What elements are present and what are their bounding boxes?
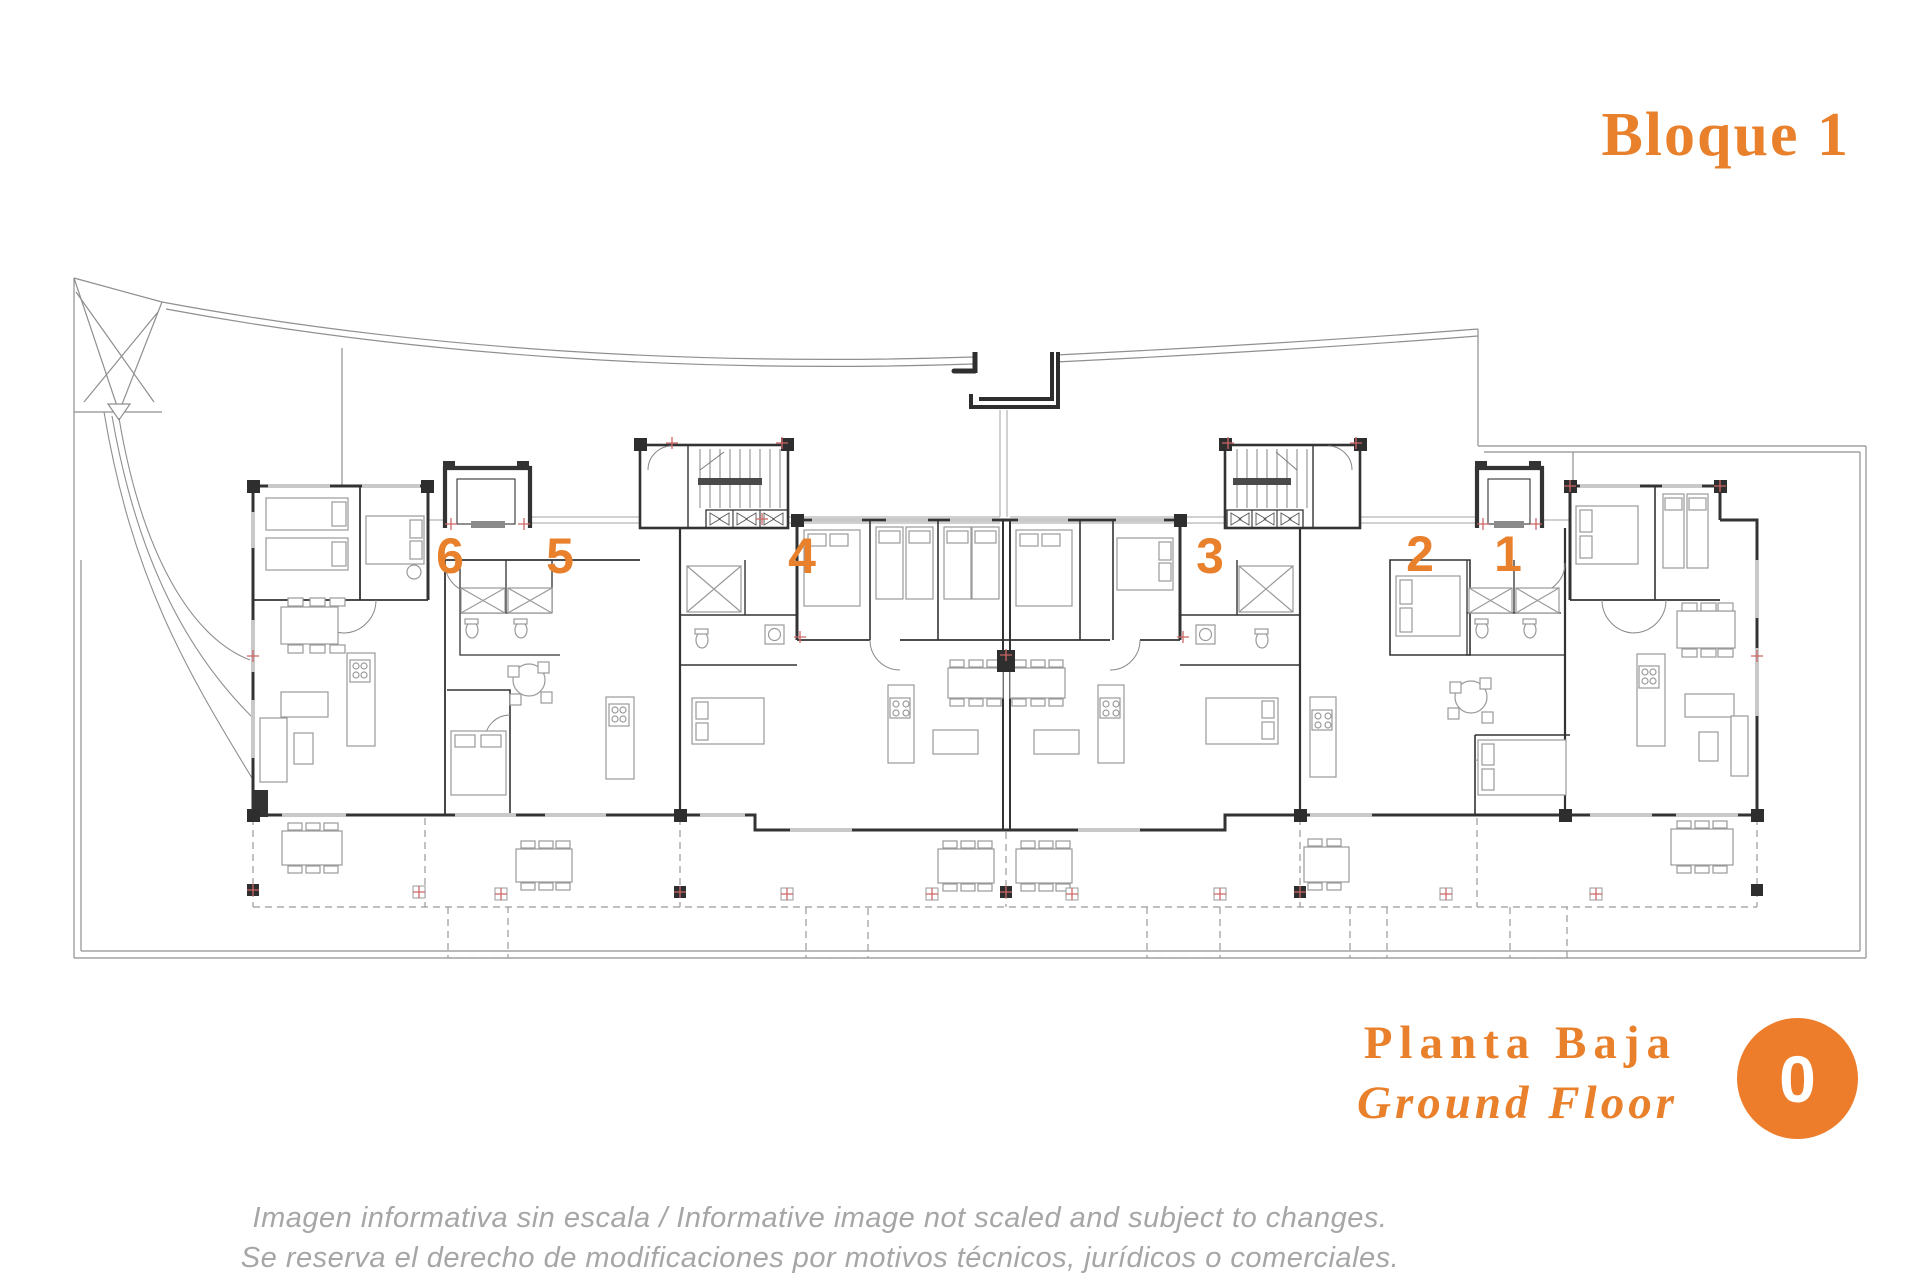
- unit-number-1: 1: [1494, 526, 1522, 582]
- unit-6-furniture: [260, 498, 424, 782]
- unit-number-6: 6: [436, 528, 464, 584]
- floor-badge: 0: [1737, 1018, 1858, 1139]
- unit-2-furniture: [1310, 576, 1566, 795]
- driveway: [104, 412, 252, 778]
- walkways: [428, 410, 1570, 523]
- disclaimer-line-1: Imagen informativa sin escala / Informat…: [210, 1198, 1430, 1238]
- entrance-canopy: [954, 352, 1058, 407]
- disclaimer-line-2: Se reserva el derecho de modificaciones …: [210, 1238, 1430, 1278]
- floor-label-primary: Planta Baja: [1364, 1016, 1677, 1070]
- elevator-right: [1475, 461, 1542, 528]
- unit-3-service: [1196, 566, 1293, 744]
- unit-4-service: [687, 566, 784, 744]
- unit-1-furniture: [1576, 494, 1748, 776]
- floor-badge-number: 0: [1779, 1046, 1816, 1112]
- stairwell-left: [640, 445, 788, 528]
- stairwell-right: [1225, 445, 1360, 528]
- unit-3-furniture: [1010, 530, 1173, 763]
- unit-5-furniture: [451, 588, 634, 795]
- unit-number-5: 5: [546, 528, 574, 584]
- unit-number-4: 4: [788, 528, 816, 584]
- unit-number-3: 3: [1196, 528, 1224, 584]
- unit-4-furniture: [804, 527, 1003, 763]
- unit-number-2: 2: [1406, 526, 1434, 582]
- floor-label-secondary: Ground Floor: [1357, 1076, 1678, 1130]
- disclaimer: Imagen informativa sin escala / Informat…: [210, 1198, 1430, 1278]
- elevator-left: [443, 461, 530, 528]
